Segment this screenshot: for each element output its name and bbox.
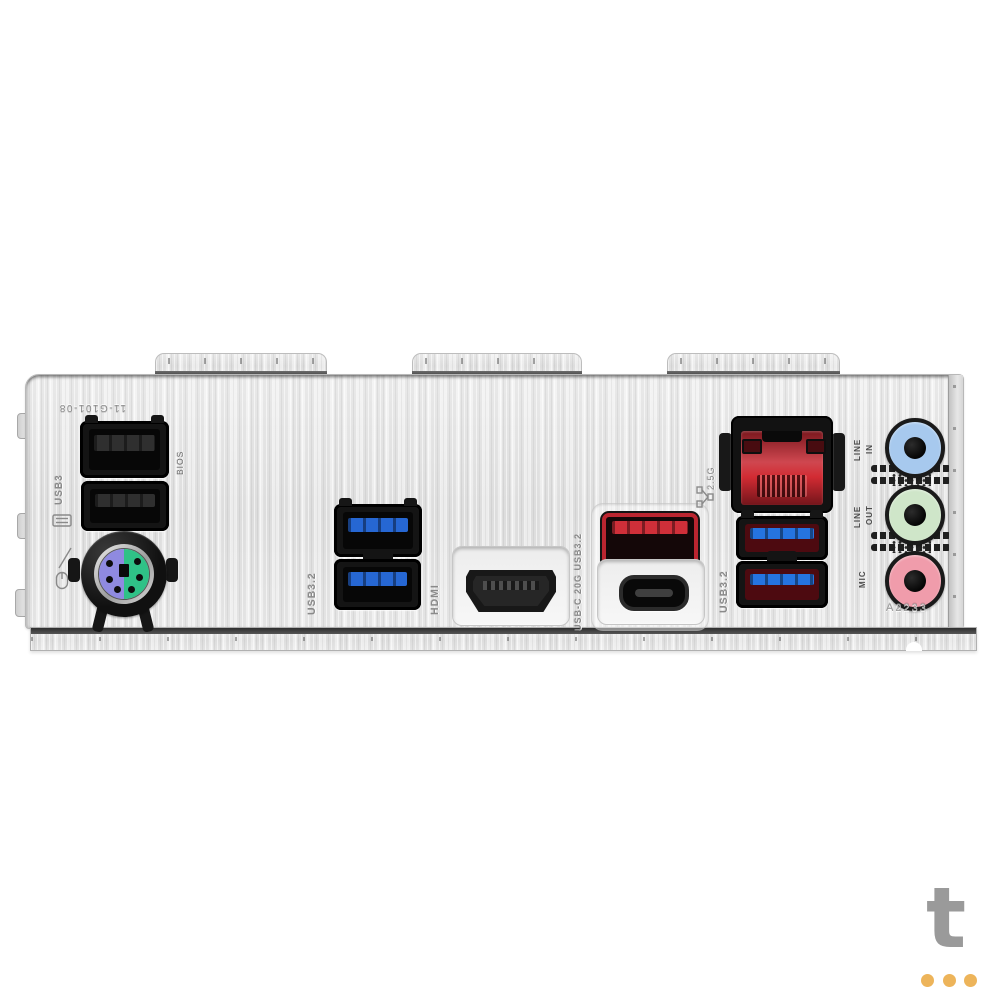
usb-tongue xyxy=(750,528,814,539)
usb-tongue xyxy=(750,574,814,586)
product-photo-scene: 11-G101-08 USB3 BIOS xyxy=(0,0,1000,1000)
usb-tongue xyxy=(95,494,155,507)
usb-type-c-port xyxy=(619,575,689,611)
lan-port xyxy=(731,416,833,513)
rail-notch xyxy=(906,642,922,651)
usb2-port-bottom xyxy=(81,481,169,531)
usb-tongue xyxy=(348,518,408,532)
ps2-pin xyxy=(136,574,143,581)
hdmi-pins xyxy=(483,581,539,590)
ps2-pin xyxy=(114,586,121,593)
usb3-port-mid-top-slot xyxy=(343,512,413,549)
lan-pins xyxy=(757,475,807,497)
usb3-port-mid-bottom-slot xyxy=(343,567,412,602)
ps2-connector xyxy=(98,548,150,600)
lan-wing-right xyxy=(832,433,845,491)
bottom-rail xyxy=(30,627,977,651)
part-number-stamp: 11-G101-08 xyxy=(54,402,126,413)
usb2-group-label: USB3 xyxy=(54,455,66,505)
mounting-tab-right xyxy=(667,353,840,376)
lan-clip-slot xyxy=(762,431,802,442)
usb-tongue xyxy=(94,435,155,451)
ps2-pin xyxy=(134,558,141,565)
vent-bar xyxy=(871,477,951,484)
mouse-icon xyxy=(55,571,69,590)
usb2-port-top-slot xyxy=(89,429,160,470)
bios-port-label: BIOS xyxy=(175,433,187,475)
lan-led-right xyxy=(806,439,826,454)
ps2-pin xyxy=(106,576,113,583)
ps2-key-slot xyxy=(119,564,129,577)
audio-jack-line-out xyxy=(885,485,945,545)
line-out-label-word1: LINE xyxy=(853,494,865,528)
mounting-tab-left xyxy=(155,353,327,376)
usbc-tongue xyxy=(635,589,673,597)
usb3-port-right-bottom xyxy=(736,561,828,608)
date-code-stamp: A2233 xyxy=(886,602,928,614)
watermark-dot xyxy=(921,974,934,987)
usb-tongue xyxy=(348,572,407,585)
watermark-dot xyxy=(964,974,977,987)
mic-label: MIC xyxy=(858,562,870,588)
usb32-mid-label: USB3.2 xyxy=(306,515,318,615)
vent-bar xyxy=(871,544,951,551)
usb2-port-bottom-slot xyxy=(90,489,160,523)
hdmi-port-inner xyxy=(473,576,549,606)
ps2-pin xyxy=(106,560,113,567)
line-in-label-word1: LINE xyxy=(853,427,865,461)
hdmi-port xyxy=(466,570,556,612)
usb3-port-mid-bottom xyxy=(334,559,421,610)
jack-hole xyxy=(904,570,926,592)
usb3-port-right-top-slot xyxy=(745,524,819,552)
ps2-metal-ring xyxy=(94,544,154,604)
keyboard-icon xyxy=(52,514,72,527)
line-out-label-word2: OUT xyxy=(865,497,877,525)
usb32-right-label: USB3.2 xyxy=(718,521,730,613)
usb2-port-top xyxy=(80,421,169,478)
mounting-tab-middle xyxy=(412,353,582,376)
watermark-dot xyxy=(943,974,956,987)
jack-hole xyxy=(904,504,926,526)
jack-hole xyxy=(904,437,926,459)
audio-jack-line-in xyxy=(885,418,945,478)
lan-speed-label: 2.5G xyxy=(706,450,718,490)
panel-right-fold xyxy=(948,375,963,628)
network-icon xyxy=(696,486,714,508)
usbc-group-label: USB-C 20G USB3.2 xyxy=(573,495,585,631)
ps2-wing-left xyxy=(68,558,80,582)
usb3-port-right-bottom-slot xyxy=(745,569,819,600)
ps2-port xyxy=(81,531,167,617)
lan-led-left xyxy=(742,439,762,454)
hdmi-label: HDMI xyxy=(429,553,441,615)
ps2-wing-right xyxy=(166,558,178,582)
watermark-letter: t xyxy=(926,876,966,960)
ps2-pin xyxy=(128,586,135,593)
usb-tongue xyxy=(612,521,688,534)
line-in-label-word2: IN xyxy=(865,436,877,454)
